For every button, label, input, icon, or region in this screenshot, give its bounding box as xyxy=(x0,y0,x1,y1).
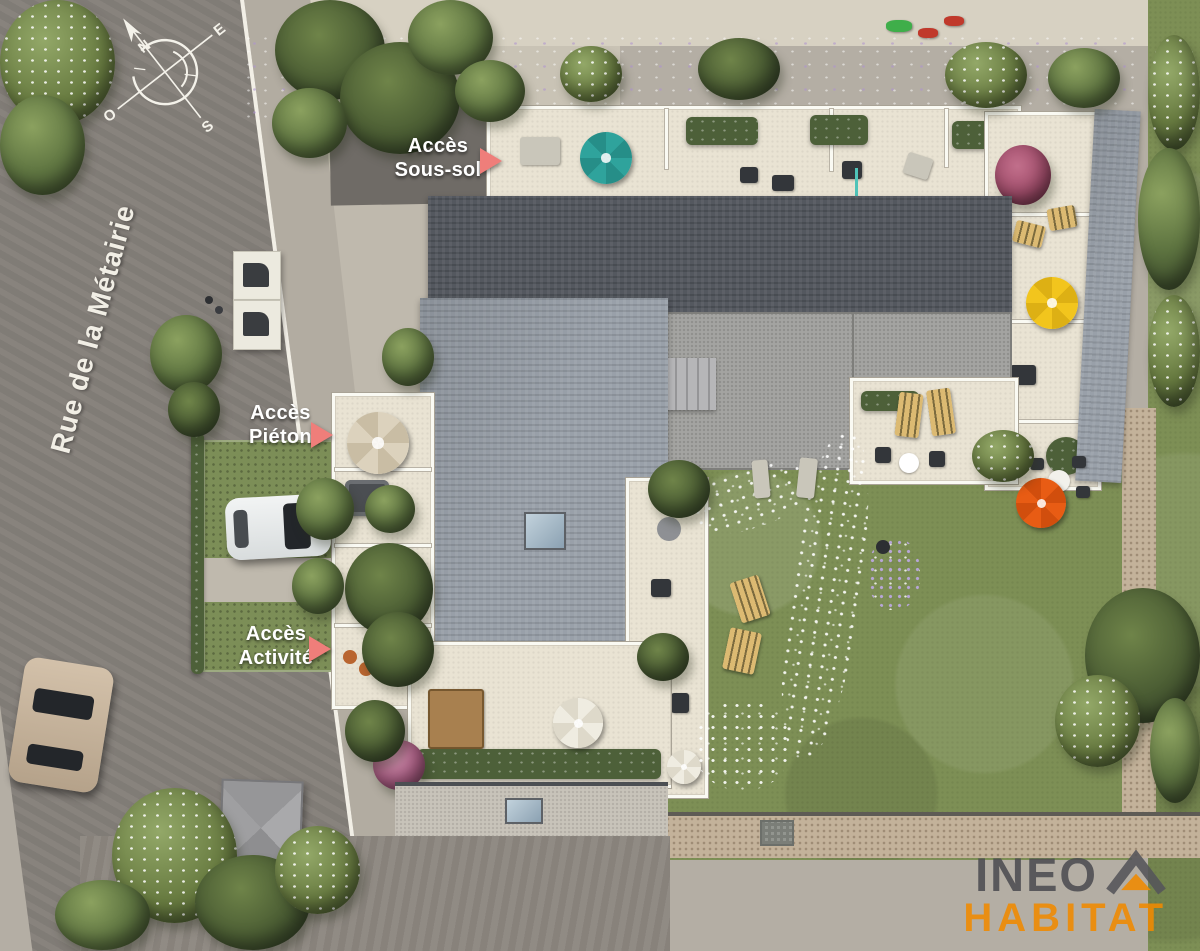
beige-umbrella xyxy=(347,412,409,474)
hedge-bush xyxy=(1048,48,1120,108)
pedestrian xyxy=(205,296,213,304)
tree xyxy=(296,478,354,540)
outdoor-chair xyxy=(772,175,794,191)
lounger xyxy=(894,392,923,439)
striped-lounger xyxy=(1046,205,1077,232)
cyclist xyxy=(886,20,912,32)
skylight xyxy=(524,512,566,550)
garden-bush xyxy=(972,430,1034,482)
tree xyxy=(1055,675,1140,767)
dining-table xyxy=(428,689,484,749)
striped-lounger xyxy=(1012,220,1046,249)
planter xyxy=(810,115,868,145)
outdoor-chair xyxy=(740,167,758,183)
courtyard-hedge xyxy=(417,749,661,779)
outdoor-chair xyxy=(929,451,945,467)
outdoor-chair xyxy=(842,161,862,179)
tree xyxy=(55,880,150,950)
access-sous-sol-label: Accès Sous-sol xyxy=(383,134,493,182)
garden-chair xyxy=(1076,486,1090,498)
car-rear-window xyxy=(26,743,84,772)
tree xyxy=(345,700,405,762)
ventilation-grate xyxy=(760,820,794,846)
tree xyxy=(1138,148,1200,290)
flower-drift xyxy=(695,700,790,790)
bistro-chair xyxy=(343,650,357,664)
tree xyxy=(1148,295,1200,407)
tree xyxy=(1150,698,1200,803)
garden-chair xyxy=(1072,456,1086,468)
access-label-line: Accès xyxy=(383,134,493,158)
outdoor-chair xyxy=(671,693,689,713)
parking-hedge xyxy=(191,432,204,674)
canopy-glazing xyxy=(243,312,269,336)
outdoor-sofa xyxy=(520,137,560,165)
hedge-bush xyxy=(945,42,1027,108)
yellow-umbrella xyxy=(1026,277,1078,329)
skylight xyxy=(505,798,543,824)
hedge-bush xyxy=(560,46,622,102)
teal-umbrella xyxy=(580,132,632,184)
courtyard-terrace-south xyxy=(408,642,671,788)
garden-bush xyxy=(637,633,689,681)
developer-logo: INEO HABITAT xyxy=(912,850,1168,938)
outdoor-chair xyxy=(651,579,671,597)
compass-letter-o: O xyxy=(100,105,120,126)
car-rear-window xyxy=(233,510,249,549)
car-windshield xyxy=(32,688,95,721)
tree xyxy=(362,612,434,687)
tree xyxy=(292,558,344,614)
tree xyxy=(1148,35,1200,150)
hedge-bush xyxy=(698,38,780,100)
tree xyxy=(150,315,222,393)
tree xyxy=(168,382,220,437)
bush xyxy=(365,485,415,533)
site-plan-canvas: Rue de la Métairie xyxy=(0,0,1200,951)
terrace-railing xyxy=(945,109,948,167)
lounge-chair xyxy=(902,152,934,181)
tree xyxy=(0,95,85,195)
compass-rose: N E S O xyxy=(85,0,245,150)
access-pieton-arrow xyxy=(311,422,333,448)
outdoor-chair xyxy=(875,447,891,463)
access-sous-sol-arrow xyxy=(480,148,502,174)
tree xyxy=(275,826,360,914)
fire-pit xyxy=(876,540,890,554)
entrance-canopy xyxy=(233,300,281,350)
logo-habitat-text: HABITAT xyxy=(963,898,1168,938)
logo-ineo-text: INEO xyxy=(975,854,1098,896)
white-umbrella xyxy=(553,698,603,748)
pedestrian xyxy=(215,306,223,314)
garden-bush xyxy=(648,460,710,518)
canopy-glazing xyxy=(243,263,269,287)
orange-umbrella xyxy=(1016,478,1066,528)
lounger xyxy=(926,388,956,437)
garden-bench xyxy=(751,459,770,498)
terrace-railing xyxy=(665,109,668,169)
main-roof-dark-slate xyxy=(428,196,1012,314)
access-activite-arrow xyxy=(309,636,331,662)
round-table xyxy=(899,453,919,473)
entrance-canopy xyxy=(233,251,281,300)
tree xyxy=(382,328,434,386)
logo-roof-icon xyxy=(1104,850,1168,896)
planter xyxy=(686,117,758,145)
hedge-bush xyxy=(455,60,525,122)
cyclist xyxy=(918,28,938,38)
compass-letter-e: E xyxy=(211,20,229,40)
tree xyxy=(272,88,347,158)
compass-letter-s: S xyxy=(199,117,217,137)
round-table xyxy=(657,517,681,541)
access-label-line: Sous-sol xyxy=(383,158,493,182)
cyclist xyxy=(944,16,964,26)
